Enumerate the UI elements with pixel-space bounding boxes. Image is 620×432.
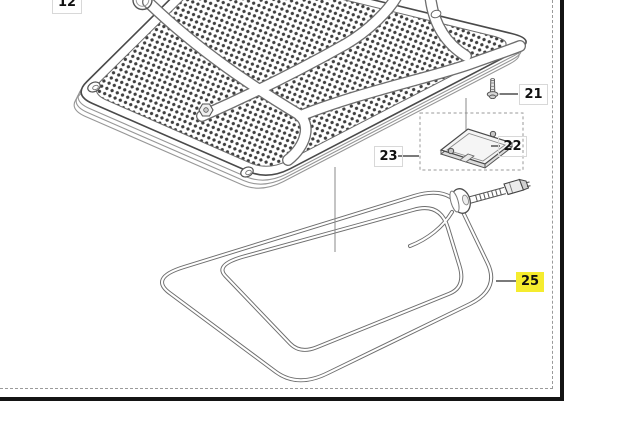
sheet-dashed-border-bottom — [0, 388, 553, 389]
cable-corrugated-drawing — [470, 189, 505, 202]
callout-12[interactable]: 12 — [52, 0, 82, 14]
connector-drawing — [504, 180, 531, 195]
parts-diagram-page: 12 21 22 23 25 — [0, 0, 620, 432]
loop-wire-drawing — [162, 193, 491, 381]
screw-drawing — [487, 79, 498, 99]
sheet-dashed-border-right — [552, 0, 553, 389]
callout-22[interactable]: 22 — [498, 136, 527, 157]
sheet-black-border-bottom — [0, 397, 564, 401]
deck-center-bolt — [199, 104, 213, 116]
sheet-black-border-right — [560, 0, 564, 401]
callout-21[interactable]: 21 — [519, 84, 548, 105]
callout-23[interactable]: 23 — [374, 146, 403, 167]
diagram-line-art — [0, 0, 620, 432]
callout-25-highlighted[interactable]: 25 — [516, 272, 544, 292]
leader-lines — [398, 94, 518, 281]
